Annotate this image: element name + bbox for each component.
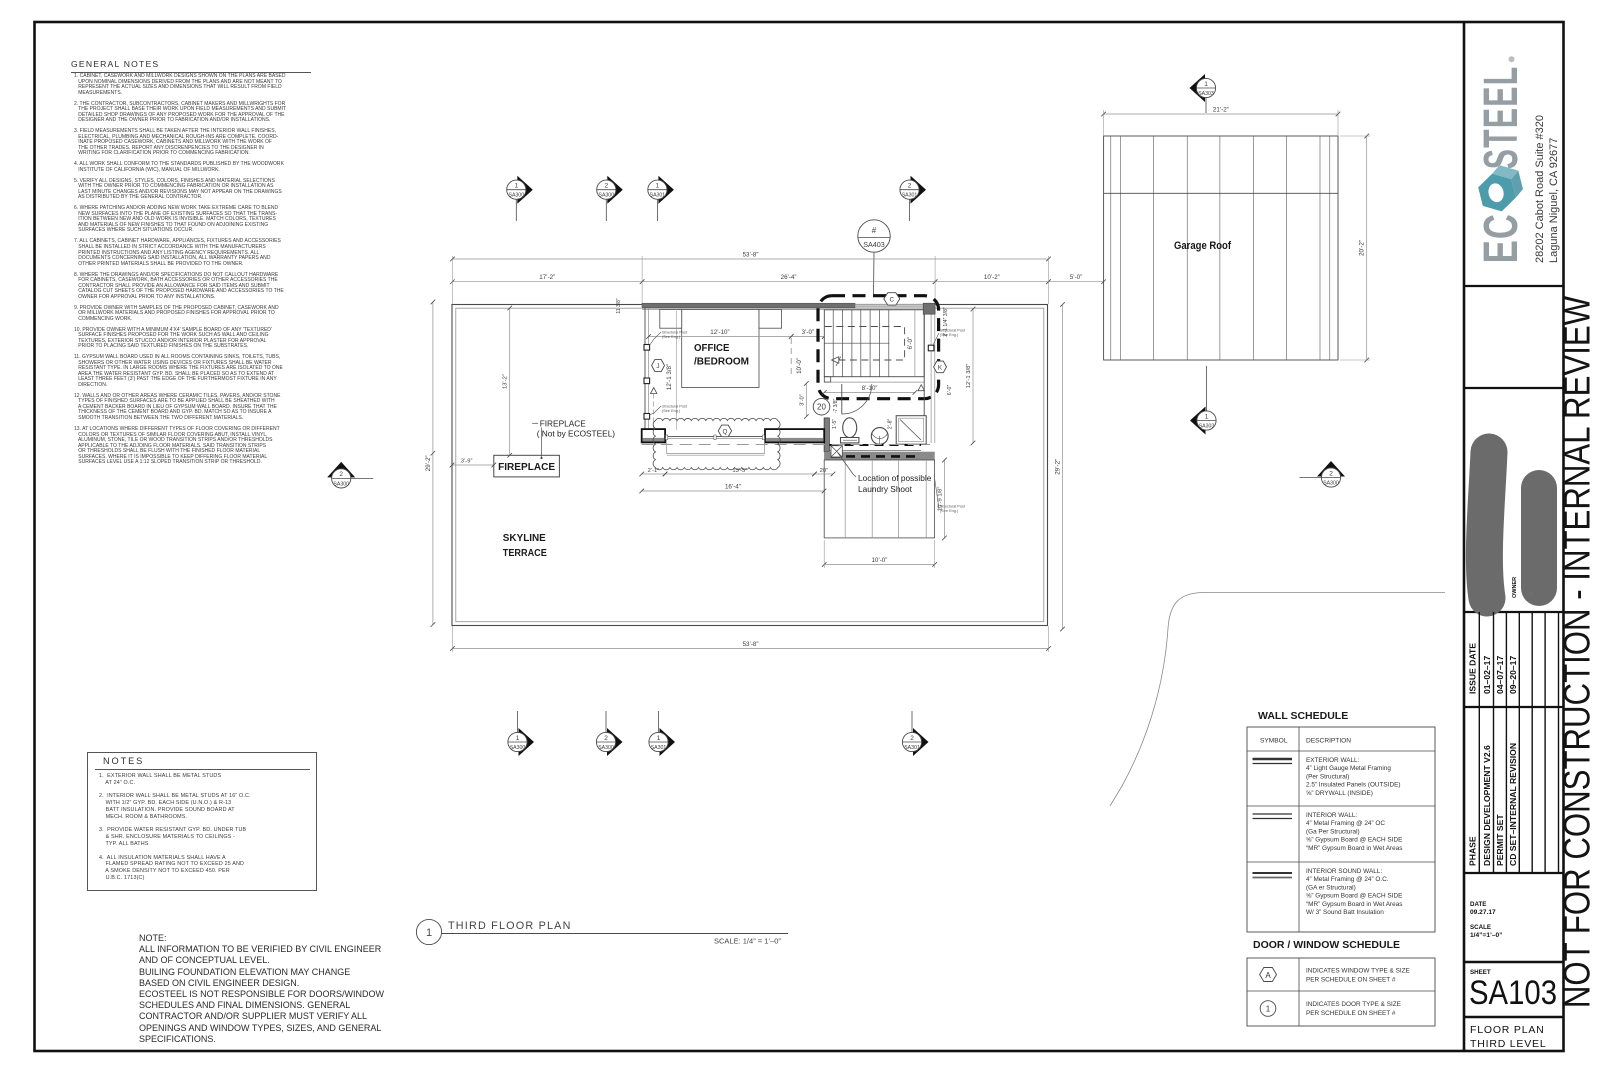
svg-text:THIRD FLOOR PLAN: THIRD FLOOR PLAN xyxy=(448,920,572,932)
svg-text:10’-0”: 10’-0” xyxy=(796,358,803,374)
svg-text:Structural Post: Structural Post xyxy=(940,505,966,509)
svg-text:4” Metal Framing @ 24” O.C.: 4” Metal Framing @ 24” O.C. xyxy=(1306,876,1389,883)
svg-text:53’-8”: 53’-8” xyxy=(743,641,759,648)
svg-text:1: 1 xyxy=(516,735,520,742)
svg-text:2’-8”: 2’-8” xyxy=(888,419,894,430)
svg-text:STEEL: STEEL xyxy=(1475,66,1528,170)
svg-text:6’-0”: 6’-0” xyxy=(907,337,914,349)
svg-text:1: 1 xyxy=(1204,81,1208,88)
svg-text:©: © xyxy=(1528,591,1535,595)
svg-text:6’-0”: 6’-0” xyxy=(947,385,953,396)
svg-text:1: 1 xyxy=(514,183,518,190)
svg-text:3’-0”: 3’-0” xyxy=(799,394,805,406)
svg-text:INDICATES DOOR TYPE & SIZE: INDICATES DOOR TYPE & SIZE xyxy=(1306,1001,1401,1008)
svg-text:(Ga Per Structural): (Ga Per Structural) xyxy=(1306,828,1360,835)
svg-text:4” Light Gauge Metal Framing: 4” Light Gauge Metal Framing xyxy=(1306,765,1391,772)
svg-text:2.5” Insulated Panels (OUTSIDE: 2.5” Insulated Panels (OUTSIDE) xyxy=(1306,782,1400,789)
svg-text:17’-2”: 17’-2” xyxy=(539,274,555,281)
svg-text:ISSUE DATE: ISSUE DATE xyxy=(1468,643,1478,694)
svg-text:PERMIT SET: PERMIT SET xyxy=(1495,814,1505,866)
svg-text:A: A xyxy=(1265,971,1271,980)
svg-text:SA300: SA300 xyxy=(1323,481,1339,487)
svg-text:16’-4”: 16’-4” xyxy=(725,484,741,491)
svg-text:53’-8”: 53’-8” xyxy=(743,252,759,259)
svg-text:DESCRIPTION: DESCRIPTION xyxy=(1306,738,1351,745)
svg-text:DESIGN DEVELOPMENT V2.6: DESIGN DEVELOPMENT V2.6 xyxy=(1482,745,1492,866)
svg-text:Laundry Shoot: Laundry Shoot xyxy=(858,484,913,494)
svg-text:4” Metal Framing @ 24” OC: 4” Metal Framing @ 24” OC xyxy=(1306,820,1385,827)
svg-text:1: 1 xyxy=(1266,1005,1271,1014)
svg-text:8’-10”: 8’-10” xyxy=(862,385,878,392)
svg-text:PER SCHEDULE ON SHEET #: PER SCHEDULE ON SHEET # xyxy=(1306,977,1396,984)
svg-text:FIREPLACE: FIREPLACE xyxy=(540,418,587,428)
svg-text:-7 3/8”: -7 3/8” xyxy=(833,398,839,413)
svg-text:2: 2 xyxy=(910,735,914,742)
svg-text:FLOOR PLAN: FLOOR PLAN xyxy=(1470,1024,1545,1036)
svg-text:INDICATES WINDOW TYPE & SIZE: INDICATES WINDOW TYPE & SIZE xyxy=(1306,968,1410,975)
svg-text:1’-5”: 1’-5” xyxy=(832,419,838,429)
svg-text:SYMBOL: SYMBOL xyxy=(1260,738,1288,745)
svg-text:DATE: DATE xyxy=(1470,901,1486,908)
svg-text:2: 2 xyxy=(1329,470,1333,477)
svg-text:2: 2 xyxy=(604,183,608,190)
svg-text:“MR” Gypsum Board in Wet Areas: “MR” Gypsum Board in Wet Areas xyxy=(1306,901,1402,908)
svg-text:SA403: SA403 xyxy=(863,240,885,249)
svg-text:(Per Structural): (Per Structural) xyxy=(1306,773,1349,780)
svg-text:FIREPLACE: FIREPLACE xyxy=(498,462,555,473)
svg-text:10’-2”: 10’-2” xyxy=(984,274,1000,281)
svg-text:INTERIOR SOUND WALL:: INTERIOR SOUND WALL: xyxy=(1306,868,1382,875)
svg-text:09–20–17: 09–20–17 xyxy=(1508,656,1518,694)
svg-text:SA303: SA303 xyxy=(1198,91,1214,97)
svg-text:12’-1 3/8”: 12’-1 3/8” xyxy=(666,364,673,390)
svg-text:2’-1”: 2’-1” xyxy=(648,468,660,474)
svg-text:PHASE: PHASE xyxy=(1468,836,1478,866)
svg-text:1/4”=1’–0”: 1/4”=1’–0” xyxy=(1470,932,1502,939)
svg-text:29’-2”: 29’-2” xyxy=(1055,459,1062,475)
svg-text:J: J xyxy=(656,363,659,370)
svg-text:2: 2 xyxy=(908,183,912,190)
svg-text:SA301: SA301 xyxy=(904,745,920,751)
svg-text:09.27.17: 09.27.17 xyxy=(1470,909,1496,916)
svg-text:5’-0”: 5’-0” xyxy=(1070,274,1082,281)
svg-text:SCALE: SCALE xyxy=(1470,924,1491,931)
svg-text:2: 2 xyxy=(604,735,608,742)
svg-text:28202 Cabot Road Suite #320: 28202 Cabot Road Suite #320 xyxy=(1534,115,1546,263)
svg-text:1: 1 xyxy=(1205,413,1209,420)
svg-text:12’-10”: 12’-10” xyxy=(710,329,729,336)
svg-text:20”: 20” xyxy=(820,468,828,474)
svg-text:3’-9”: 3’-9” xyxy=(461,459,473,465)
svg-text:Location of possible: Location of possible xyxy=(858,473,932,483)
svg-text:SA300: SA300 xyxy=(599,193,615,199)
svg-text:12’-1 3/8”: 12’-1 3/8” xyxy=(966,364,972,389)
svg-text:1: 1 xyxy=(657,735,661,742)
svg-text:(See Eng.): (See Eng.) xyxy=(662,409,681,413)
svg-text:13’-5”: 13’-5” xyxy=(732,468,747,474)
svg-text:SA300: SA300 xyxy=(333,481,349,487)
svg-text:SA301: SA301 xyxy=(650,193,666,199)
svg-text:OFFICE: OFFICE xyxy=(694,342,730,354)
svg-text:3’-0”: 3’-0” xyxy=(802,329,814,336)
svg-text:SKYLINE: SKYLINE xyxy=(503,532,546,544)
svg-text:04–07–17: 04–07–17 xyxy=(1495,656,1505,694)
svg-text:10’-0”: 10’-0” xyxy=(871,557,887,564)
svg-text:EXTERIOR WALL:: EXTERIOR WALL: xyxy=(1306,757,1360,764)
svg-text:⅝” Gypsum Board @ EACH SIDE: ⅝” Gypsum Board @ EACH SIDE xyxy=(1306,893,1402,900)
svg-text:THIRD LEVEL: THIRD LEVEL xyxy=(1470,1038,1547,1050)
svg-text:21’-2”: 21’-2” xyxy=(1213,107,1229,114)
svg-text:C: C xyxy=(890,297,895,304)
svg-text:W/ 3” Sound Batt Insulation: W/ 3” Sound Batt Insulation xyxy=(1306,909,1384,916)
svg-text:01–02–17: 01–02–17 xyxy=(1482,656,1492,694)
svg-text:CD SET–INTERNAL REVISION: CD SET–INTERNAL REVISION xyxy=(1508,743,1518,866)
svg-text:SA301: SA301 xyxy=(902,193,918,199)
svg-text:SA301: SA301 xyxy=(651,745,667,751)
svg-text:(See Eng.): (See Eng.) xyxy=(662,335,681,339)
svg-text:TERRACE: TERRACE xyxy=(503,547,547,559)
svg-text:EC: EC xyxy=(1473,213,1527,263)
svg-text:29’-2”: 29’-2” xyxy=(425,455,432,471)
svg-text:1: 1 xyxy=(656,183,660,190)
svg-text:1: 1 xyxy=(426,927,432,939)
svg-text:INTERIOR WALL:: INTERIOR WALL: xyxy=(1306,812,1357,819)
svg-text:DOOR / WINDOW SCHEDULE: DOOR / WINDOW SCHEDULE xyxy=(1253,939,1400,951)
svg-text:⅝” DRYWALL (INSIDE): ⅝” DRYWALL (INSIDE) xyxy=(1306,790,1373,797)
svg-text:WALL SCHEDULE: WALL SCHEDULE xyxy=(1258,710,1348,722)
svg-text:SA300: SA300 xyxy=(510,745,526,751)
svg-text:SA300: SA300 xyxy=(598,745,614,751)
svg-text:#: # xyxy=(872,226,877,235)
svg-text:SA303: SA303 xyxy=(1199,424,1215,430)
svg-text:SA300: SA300 xyxy=(509,193,525,199)
svg-text:/BEDROOM: /BEDROOM xyxy=(694,356,749,368)
svg-text:2: 2 xyxy=(339,471,343,478)
svg-text:13’-2”: 13’-2” xyxy=(503,374,509,389)
svg-text:Structural Post: Structural Post xyxy=(662,331,688,335)
svg-text:2’-1 1/4” 3/8”: 2’-1 1/4” 3/8” xyxy=(943,307,949,337)
svg-text:20’-2”: 20’-2” xyxy=(1359,240,1366,256)
svg-text:11 3/8”: 11 3/8” xyxy=(616,298,622,314)
svg-text:“MR” Gypsum Board in Wet Areas: “MR” Gypsum Board in Wet Areas xyxy=(1306,845,1402,852)
svg-text:20: 20 xyxy=(817,403,826,412)
svg-text:10’-9 1/8”: 10’-9 1/8” xyxy=(938,487,944,512)
svg-text:(GA er Structural): (GA er Structural) xyxy=(1306,884,1356,891)
svg-text:26’-4”: 26’-4” xyxy=(781,274,797,281)
svg-text:Q: Q xyxy=(722,428,727,435)
svg-text:( Not by ECOSTEEL): ( Not by ECOSTEEL) xyxy=(537,429,616,439)
svg-text:Laguna Niguel, CA 92677: Laguna Niguel, CA 92677 xyxy=(1548,138,1560,263)
svg-text:Garage Roof: Garage Roof xyxy=(1174,240,1231,252)
svg-text:SCALE: 1/4” = 1’–0”: SCALE: 1/4” = 1’–0” xyxy=(714,937,781,946)
svg-text:OWNER: OWNER xyxy=(1512,577,1518,598)
svg-text:SA103: SA103 xyxy=(1469,974,1557,1012)
svg-text:⅝” Gypsum Board @ EACH SIDE: ⅝” Gypsum Board @ EACH SIDE xyxy=(1306,837,1402,844)
svg-text:PER SCHEDULE ON SHEET #: PER SCHEDULE ON SHEET # xyxy=(1306,1010,1396,1017)
svg-text:Structural Post: Structural Post xyxy=(662,405,688,409)
